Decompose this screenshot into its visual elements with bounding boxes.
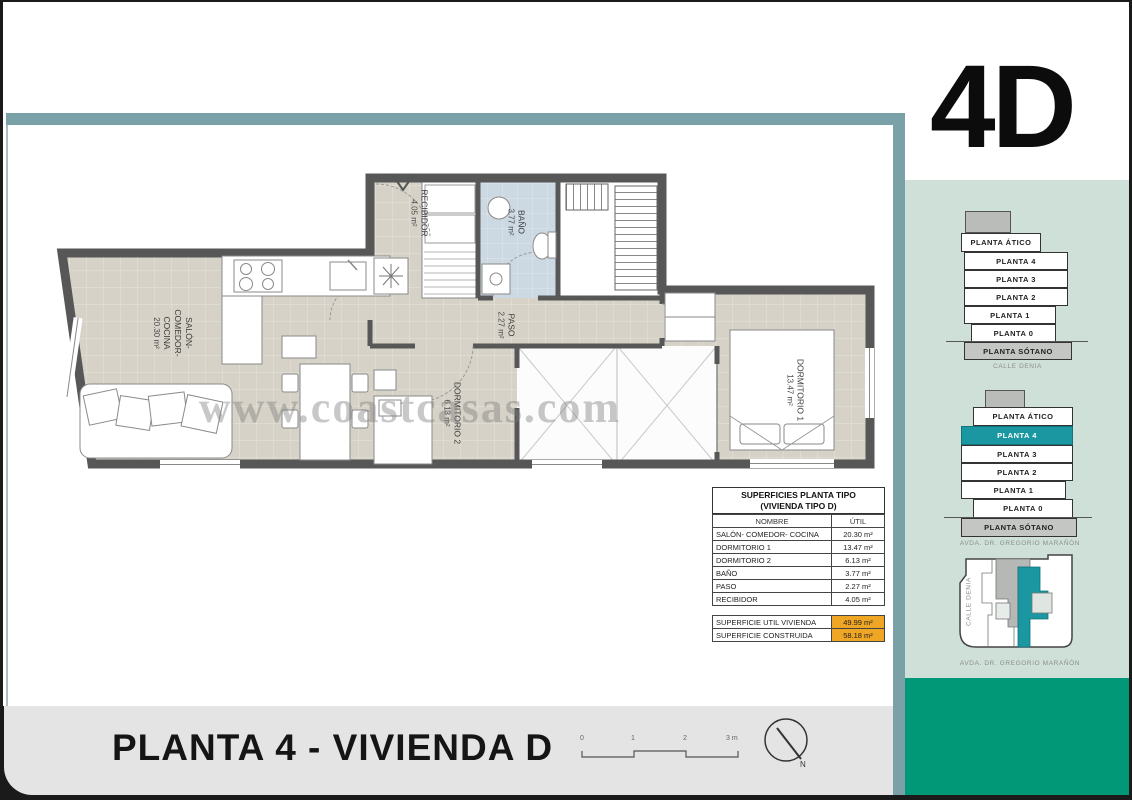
left-frame-line [6,125,8,706]
scale-bar: 0 1 2 3 m [578,735,753,775]
plan-sheet: 4D [0,0,1132,800]
level-p0: PLANTA 0 [971,324,1056,342]
level-p0: PLANTA 0 [973,499,1073,518]
level-atico: PLANTA ÁTICO [961,233,1041,252]
level-p2: PLANTA 2 [964,288,1068,306]
level-atico: PLANTA ÁTICO [973,407,1073,426]
table-row: PASO2.27 m² [713,580,885,593]
north-arrow-graphic [760,714,820,782]
vertical-accent-bar [893,113,905,797]
stairs [615,186,657,290]
superficies-table: SUPERFICIES PLANTA TIPO (VIVIENDA TIPO D… [712,487,885,642]
north-arrow: N [760,714,820,782]
table-row: BAÑO3.77 m² [713,567,885,580]
frame-edge [0,795,1132,800]
top-accent-bar [6,113,905,125]
avenue-caption: AVDA. DR. GREGORIO MARAÑÓN [945,540,1095,547]
room-label-salon: SALÓN-COMEDOR- COCINA20.30 m² [150,309,194,356]
table-row: DORMITORIO 113.47 m² [713,541,885,554]
site-avenue-caption: AVDA. DR. GREGORIO MARAÑÓN [945,660,1095,667]
lift [566,184,608,210]
page-title: PLANTA 4 - VIVIENDA D [112,727,553,769]
superficies-table-title: SUPERFICIES PLANTA TIPO (VIVIENDA TIPO D… [712,487,885,514]
util-total-value: 49.99 m² [832,616,885,629]
bed-dorm1 [730,330,834,450]
wardrobe-dorm1 [665,293,715,341]
room-label-dorm1: DORMITORIO 113.47 m² [784,359,805,421]
level-sotano: PLANTA SÓTANO [961,518,1077,537]
paso-floor [460,298,662,346]
roof-block [965,211,1011,233]
hall-closet [422,182,478,298]
level-sotano: PLANTA SÓTANO [964,342,1072,360]
scale-label: 1 [631,735,635,742]
table-row: RECIBIDOR4.05 m² [713,593,885,606]
superficies-rows: NOMBRE ÚTIL SALÓN- COMEDOR- COCINA20.30 … [712,514,885,606]
superficies-summary: SUPERFICIE UTIL VIVIENDA 49.99 m² SUPERF… [712,615,885,642]
site-street-caption: CALLE DENIA [966,557,973,647]
summary-row: SUPERFICIE CONSTRUIDA 58.18 m² [713,629,885,642]
frame-edge [0,0,3,800]
unit-code-logo: 4D [930,48,1130,166]
level-p3: PLANTA 3 [964,270,1068,288]
frame-edge [0,0,1132,2]
table-header-row: NOMBRE ÚTIL [713,515,885,528]
watermark: www.coastcasas.com [80,382,740,433]
scale-bar-graphic [578,747,748,767]
built-total-value: 58.18 m² [832,629,885,642]
table-row: SALÓN- COMEDOR- COCINA20.30 m² [713,528,885,541]
scale-label: 2 [683,735,687,742]
level-p1: PLANTA 1 [964,306,1056,324]
table-row: DORMITORIO 26.13 m² [713,554,885,567]
summary-row: SUPERFICIE UTIL VIVIENDA 49.99 m² [713,616,885,629]
scale-label: 3 m [726,735,738,742]
level-p4: PLANTA 4 [964,252,1068,270]
room-label-recibidor: RECIBIDOR4.05 m² [408,189,429,236]
level-p1: PLANTA 1 [961,481,1066,499]
street-caption: CALLE DENIA [950,363,1085,370]
level-p2: PLANTA 2 [961,463,1073,481]
room-label-bano: BAÑO3.77 m² [505,208,526,235]
scale-label: 0 [580,735,584,742]
room-label-paso: PASO2.27 m² [495,311,516,338]
level-p4-highlighted: PLANTA 4 [961,426,1073,445]
north-label: N [800,760,806,769]
brand-color-block [905,678,1130,797]
level-p3: PLANTA 3 [961,445,1073,463]
